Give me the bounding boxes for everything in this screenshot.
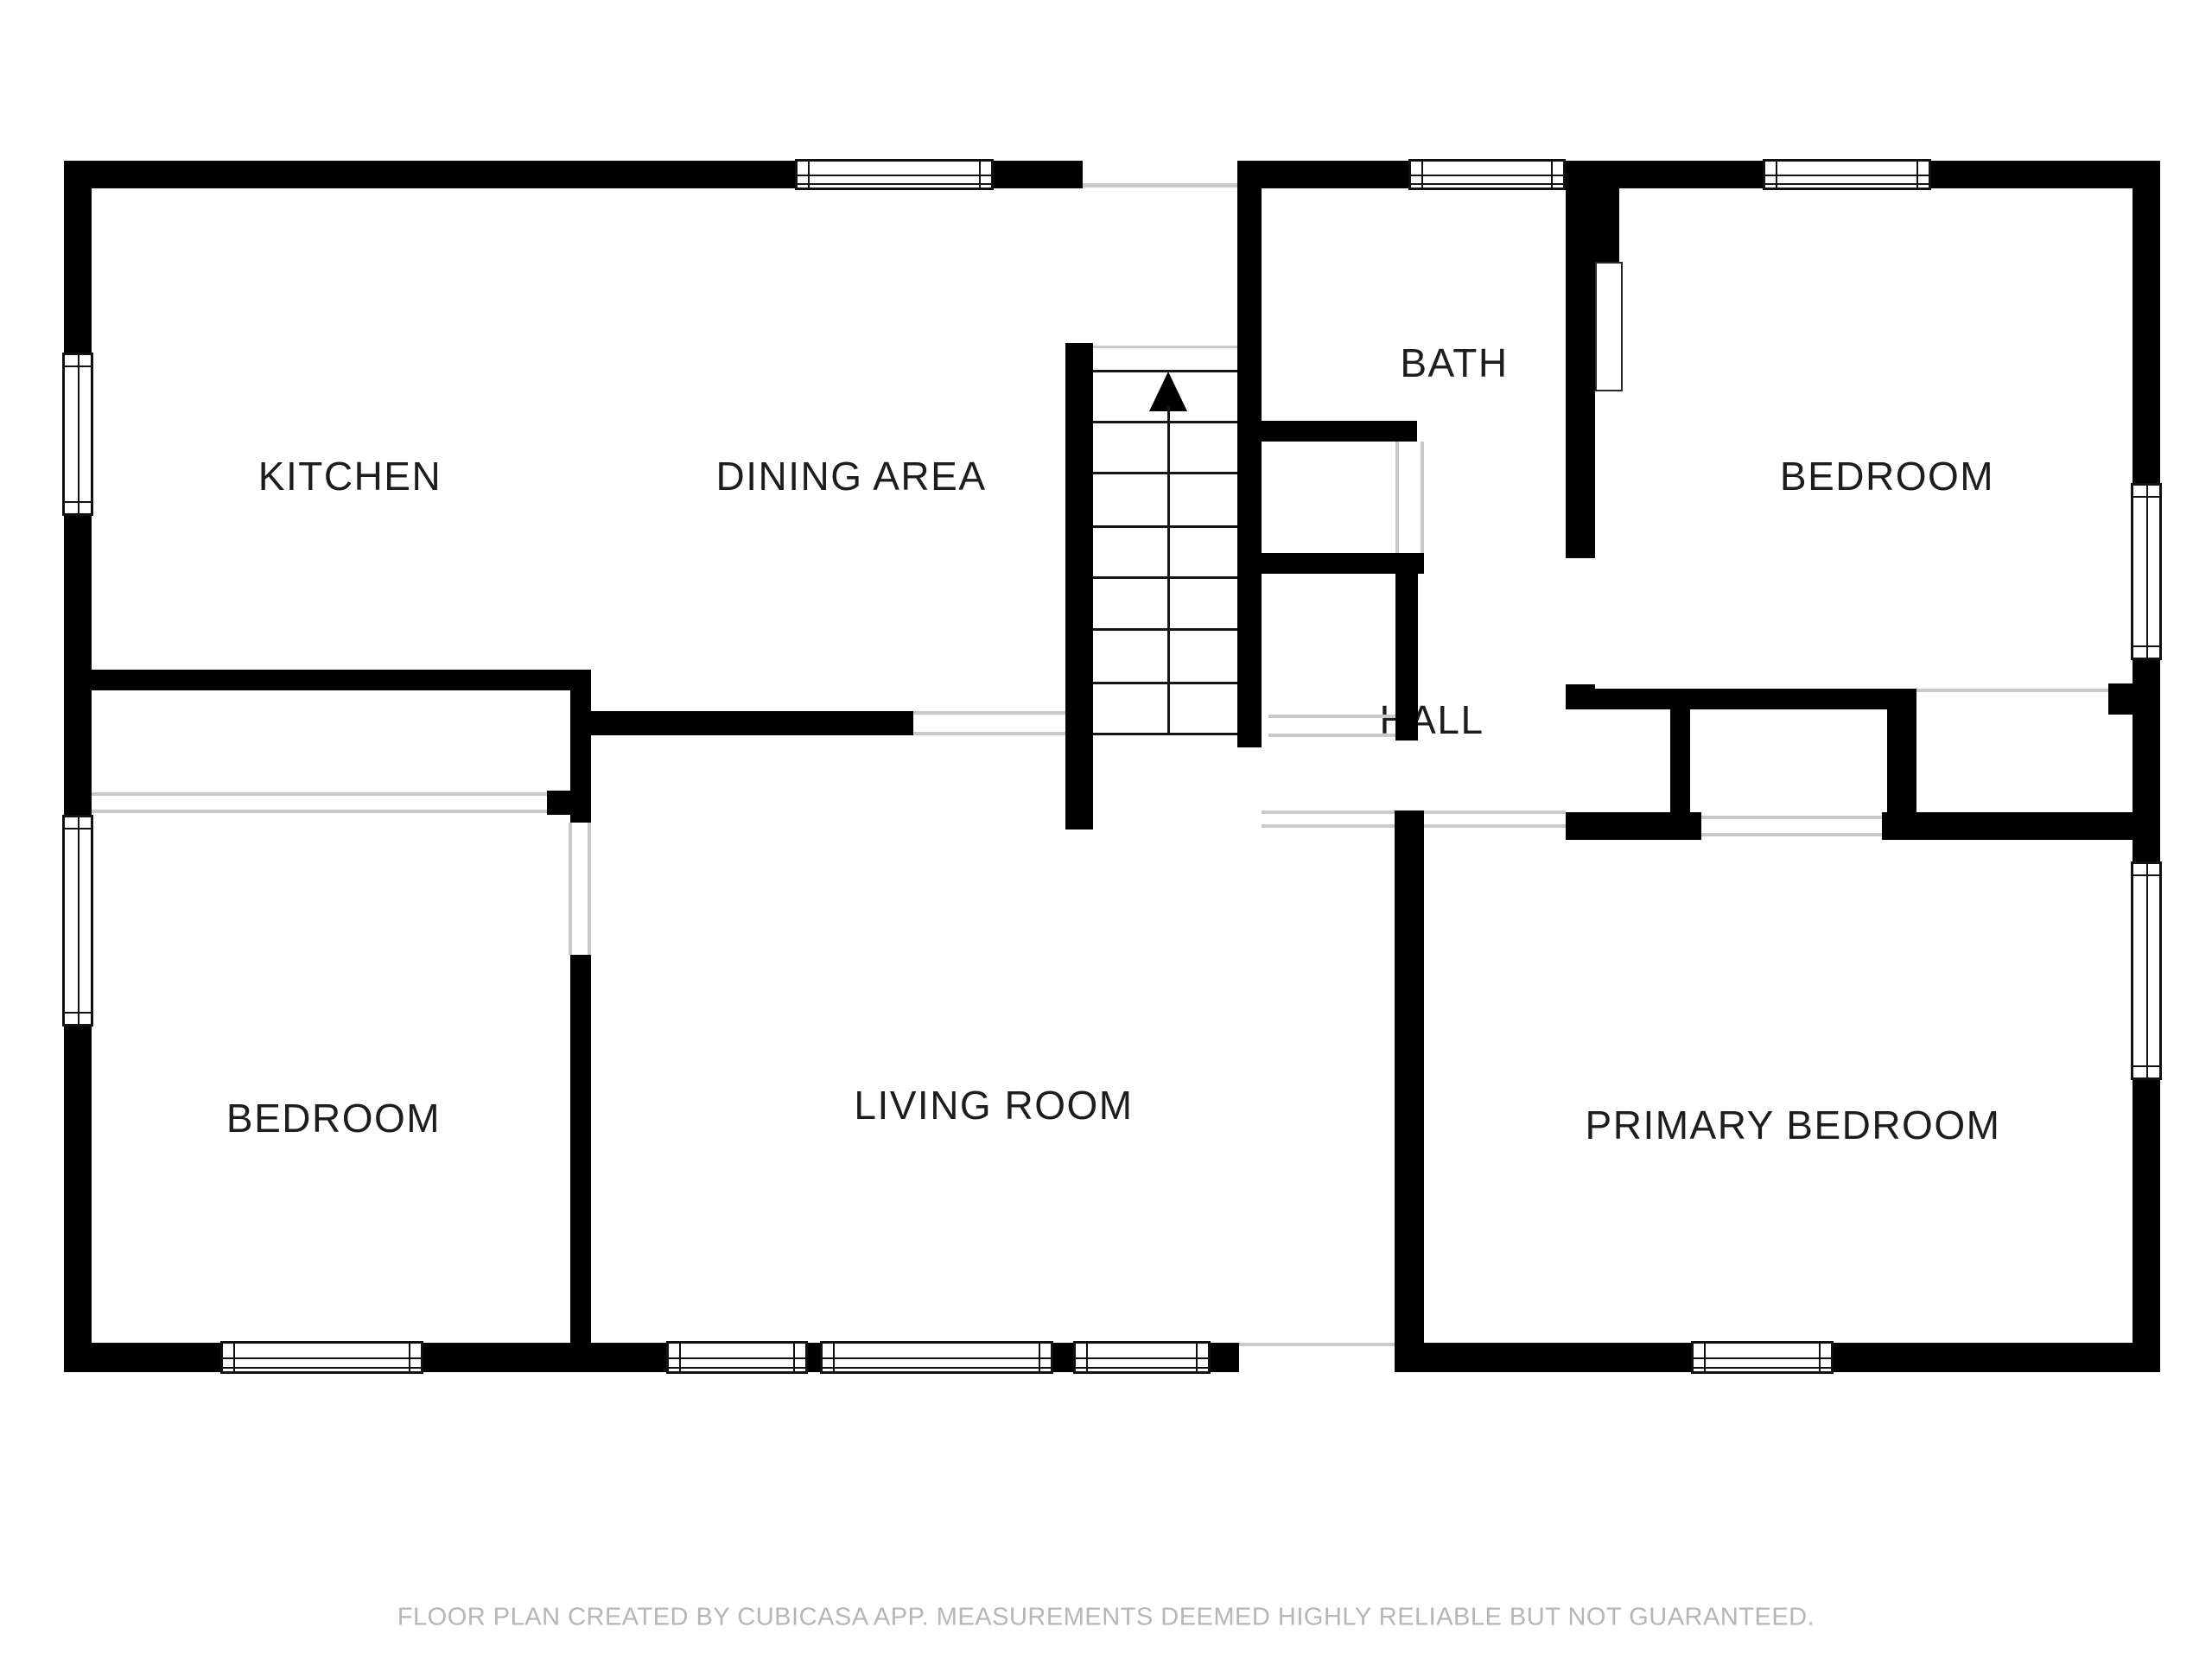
window-mullion [78, 355, 79, 513]
window-mullion [798, 183, 991, 185]
window [62, 815, 93, 1027]
window-mullion [798, 175, 991, 176]
door-leaf [1595, 262, 1623, 391]
window-mullion [1765, 183, 1929, 185]
window-mullion [1196, 1344, 1198, 1371]
window-mullion [1776, 162, 1777, 188]
wall [547, 791, 570, 815]
wall [64, 670, 591, 690]
opening-line [92, 792, 547, 796]
window-mullion [793, 1344, 795, 1371]
window-mullion [233, 1344, 235, 1371]
window-mullion [78, 817, 79, 1024]
wall [64, 516, 92, 817]
wall [2133, 188, 2160, 483]
window-mullion [679, 1344, 681, 1371]
opening-line [1916, 689, 2108, 692]
wall [1395, 1343, 1691, 1372]
wall [1262, 553, 1424, 574]
window-mullion [1076, 1357, 1208, 1359]
wall [1053, 1343, 1073, 1372]
wall [1834, 1343, 2160, 1372]
wall [570, 955, 591, 1343]
stair-tread [1093, 733, 1237, 735]
window-mullion [1411, 175, 1563, 176]
window-mullion [65, 365, 91, 367]
window-mullion [1694, 1367, 1831, 1369]
window-mullion [409, 1344, 410, 1371]
wall [1882, 812, 2133, 840]
window-mullion [2133, 496, 2159, 498]
wall [570, 670, 591, 823]
room-label-bath: BATH [1400, 340, 1508, 386]
floor-plan: KITCHEN DINING AREA BATH BEDROOM HALL BE… [0, 0, 2212, 1659]
window [220, 1341, 423, 1374]
opening-line [1093, 346, 1237, 348]
opening-line [1262, 824, 1395, 828]
window-mullion [1819, 1344, 1821, 1371]
stair-tread [1093, 525, 1237, 528]
wall [1931, 161, 2160, 188]
window-mullion [979, 162, 981, 188]
wall [1595, 188, 1619, 262]
wall [2133, 1080, 2160, 1343]
window-mullion [823, 1357, 1051, 1359]
window-mullion [2146, 486, 2148, 658]
window [820, 1341, 1053, 1374]
window-mullion [669, 1367, 805, 1369]
room-label-living-room: LIVING ROOM [854, 1082, 1133, 1128]
opening-line [1083, 183, 1237, 188]
opening-line [1421, 442, 1424, 553]
window [62, 353, 93, 516]
window-mullion [1421, 162, 1423, 188]
stair-tread [1093, 472, 1237, 474]
wall [1211, 1343, 1239, 1372]
wall [1566, 188, 1595, 558]
room-label-kitchen: KITCHEN [258, 453, 442, 499]
opening-line [1268, 715, 1395, 718]
wall [64, 161, 795, 188]
window-mullion [223, 1357, 421, 1359]
window-mullion [808, 162, 810, 188]
window-mullion [2133, 1065, 2159, 1067]
opening-line [1268, 734, 1395, 737]
opening-line [1262, 810, 1395, 814]
window-mullion [2133, 645, 2159, 647]
wall [1566, 812, 1701, 840]
window-mullion [1916, 162, 1918, 188]
stair-tread [1093, 421, 1237, 423]
window-mullion [823, 1367, 1051, 1369]
wall [808, 1343, 820, 1372]
opening-line [588, 823, 591, 955]
wall [994, 161, 1083, 188]
window-mullion [2146, 864, 2148, 1077]
opening-line [1239, 1343, 1395, 1346]
window-mullion [1765, 175, 1929, 176]
opening-line [913, 711, 1065, 715]
window [1763, 159, 1931, 190]
room-label-bedroom-left: BEDROOM [226, 1095, 441, 1141]
window [1691, 1341, 1834, 1374]
wall [1566, 161, 1763, 188]
stair-tread [1093, 628, 1237, 631]
window [1408, 159, 1566, 190]
wall [570, 711, 913, 735]
opening-line [1395, 442, 1399, 553]
window [2131, 483, 2162, 660]
window [1073, 1341, 1211, 1374]
wall [64, 1343, 220, 1372]
window-mullion [1551, 162, 1553, 188]
opening-line [1701, 816, 1882, 819]
opening-line [569, 823, 572, 955]
wall [1395, 574, 1418, 741]
opening-line [1424, 810, 1566, 814]
stair-tread [1093, 370, 1237, 372]
wall [2133, 660, 2160, 861]
window [2131, 861, 2162, 1080]
wall [64, 188, 92, 354]
wall [1670, 709, 1690, 812]
wall [2108, 683, 2133, 715]
window [666, 1341, 808, 1374]
window-mullion [223, 1367, 421, 1369]
wall [1065, 343, 1093, 829]
opening-line [92, 810, 547, 813]
window-mullion [65, 1012, 91, 1014]
window [795, 159, 994, 190]
footer-disclaimer: FLOOR PLAN CREATED BY CUBICASA APP. MEAS… [397, 1604, 1815, 1632]
window-mullion [65, 828, 91, 829]
wall [64, 1027, 92, 1372]
opening-line [1424, 824, 1566, 828]
window-mullion [1076, 1367, 1208, 1369]
wall [1237, 161, 1408, 188]
wall [1566, 689, 1916, 709]
window-mullion [1694, 1357, 1831, 1359]
wall [1262, 421, 1417, 442]
window-mullion [1086, 1344, 1088, 1371]
room-label-dining-area: DINING AREA [715, 453, 986, 499]
window-mullion [1411, 183, 1563, 185]
window-mullion [2133, 874, 2159, 876]
wall [1395, 810, 1424, 1343]
stair-center-line [1167, 406, 1170, 735]
window-mullion [1704, 1344, 1706, 1371]
wall [1237, 188, 1262, 747]
opening-line [1701, 833, 1882, 836]
window-mullion [1039, 1344, 1040, 1371]
window-mullion [833, 1344, 835, 1371]
window-mullion [669, 1357, 805, 1359]
wall [423, 1343, 666, 1372]
opening-line [913, 732, 1065, 735]
stair-tread [1093, 682, 1237, 684]
window-mullion [65, 501, 91, 503]
room-label-bedroom-top: BEDROOM [1780, 453, 1994, 499]
room-label-primary-bedroom: PRIMARY BEDROOM [1586, 1102, 2001, 1148]
stair-tread [1093, 576, 1237, 579]
